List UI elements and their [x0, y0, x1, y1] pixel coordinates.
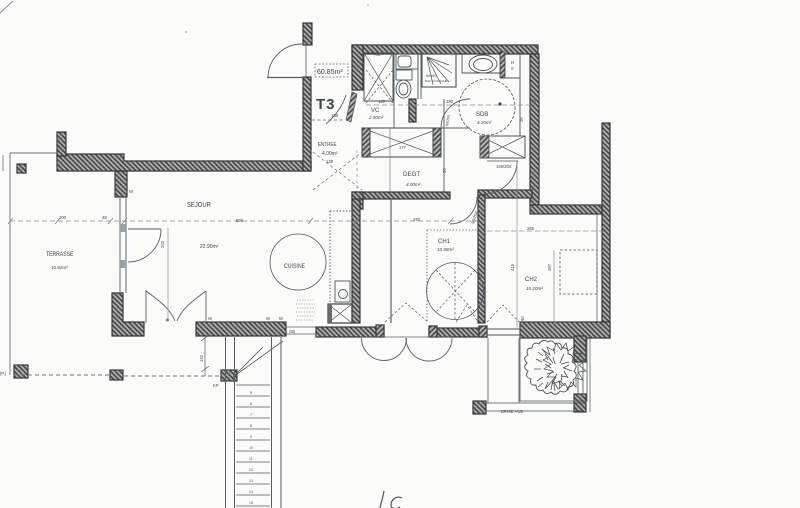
svg-text:TERRASSE: TERRASSE [46, 252, 74, 259]
svg-text:14: 14 [249, 490, 253, 494]
svg-text:252: 252 [160, 240, 165, 248]
svg-text:13: 13 [249, 479, 253, 483]
svg-text:26: 26 [442, 168, 447, 173]
svg-text:90x90: 90x90 [426, 74, 436, 78]
svg-text:CH2: CH2 [525, 277, 538, 283]
svg-text:W: W [208, 316, 212, 321]
svg-text:10.82m²: 10.82m² [51, 265, 68, 270]
svg-text:GB: GB [289, 329, 295, 334]
svg-text:BRISE VUE: BRISE VUE [501, 409, 524, 414]
svg-text:11: 11 [249, 457, 253, 461]
svg-text:S: S [511, 66, 514, 71]
svg-text:(P.): (P.) [0, 371, 7, 376]
svg-text:15: 15 [249, 501, 253, 505]
svg-text:8: 8 [250, 424, 252, 428]
svg-text:265: 265 [527, 226, 535, 231]
svg-text:W: W [279, 316, 283, 321]
svg-text:10: 10 [249, 446, 253, 450]
svg-text:10.20m²: 10.20m² [526, 286, 543, 291]
svg-text:142: 142 [199, 354, 204, 362]
svg-text:12: 12 [249, 468, 253, 472]
svg-text:4.00m²: 4.00m² [406, 182, 421, 187]
svg-text:60.85m²: 60.85m² [317, 69, 343, 76]
svg-text:90: 90 [520, 316, 525, 321]
svg-text:10.08m²: 10.08m² [437, 247, 454, 252]
svg-text:H: H [511, 60, 514, 65]
svg-text:4.20m²: 4.20m² [477, 120, 492, 125]
svg-text:BAC A DOUCHE: BAC A DOUCHE [425, 79, 448, 83]
svg-text:W: W [266, 316, 270, 321]
svg-text:2.50m²: 2.50m² [368, 115, 384, 120]
svg-text:287: 287 [547, 263, 552, 271]
svg-text:VC: VC [371, 108, 380, 114]
svg-text:22.90m²: 22.90m² [200, 244, 219, 250]
svg-text:9: 9 [250, 435, 252, 439]
svg-text:6: 6 [250, 402, 252, 406]
svg-text:KP: KP [213, 383, 219, 388]
svg-text:DEGT: DEGT [403, 171, 420, 178]
svg-text:ENTREE: ENTREE [318, 142, 337, 149]
svg-text:-60-: -60- [374, 52, 382, 57]
svg-text:415: 415 [510, 263, 515, 271]
svg-text:7: 7 [250, 413, 252, 417]
svg-text:4.00m²: 4.00m² [322, 151, 338, 157]
svg-text:T3: T3 [316, 96, 336, 113]
svg-text:168: 168 [331, 113, 339, 118]
svg-text:48: 48 [102, 215, 107, 220]
svg-text:CH1: CH1 [438, 239, 451, 245]
svg-text:CUISINE: CUISINE [284, 264, 305, 270]
svg-text:W: W [129, 189, 133, 194]
svg-text:598: 598 [236, 218, 244, 223]
svg-text:26: 26 [519, 117, 524, 122]
svg-text:SEJOUR: SEJOUR [187, 202, 211, 210]
svg-text:200: 200 [59, 215, 67, 220]
svg-text:5: 5 [250, 391, 252, 395]
svg-text:159/204: 159/204 [496, 164, 512, 169]
svg-text:70: 70 [531, 99, 536, 104]
svg-text:SDB: SDB [476, 112, 488, 118]
svg-text:240: 240 [413, 217, 421, 222]
svg-text:177: 177 [399, 145, 407, 150]
svg-text:140: 140 [378, 99, 386, 104]
svg-text:138: 138 [326, 159, 334, 164]
svg-text:290: 290 [446, 99, 454, 104]
